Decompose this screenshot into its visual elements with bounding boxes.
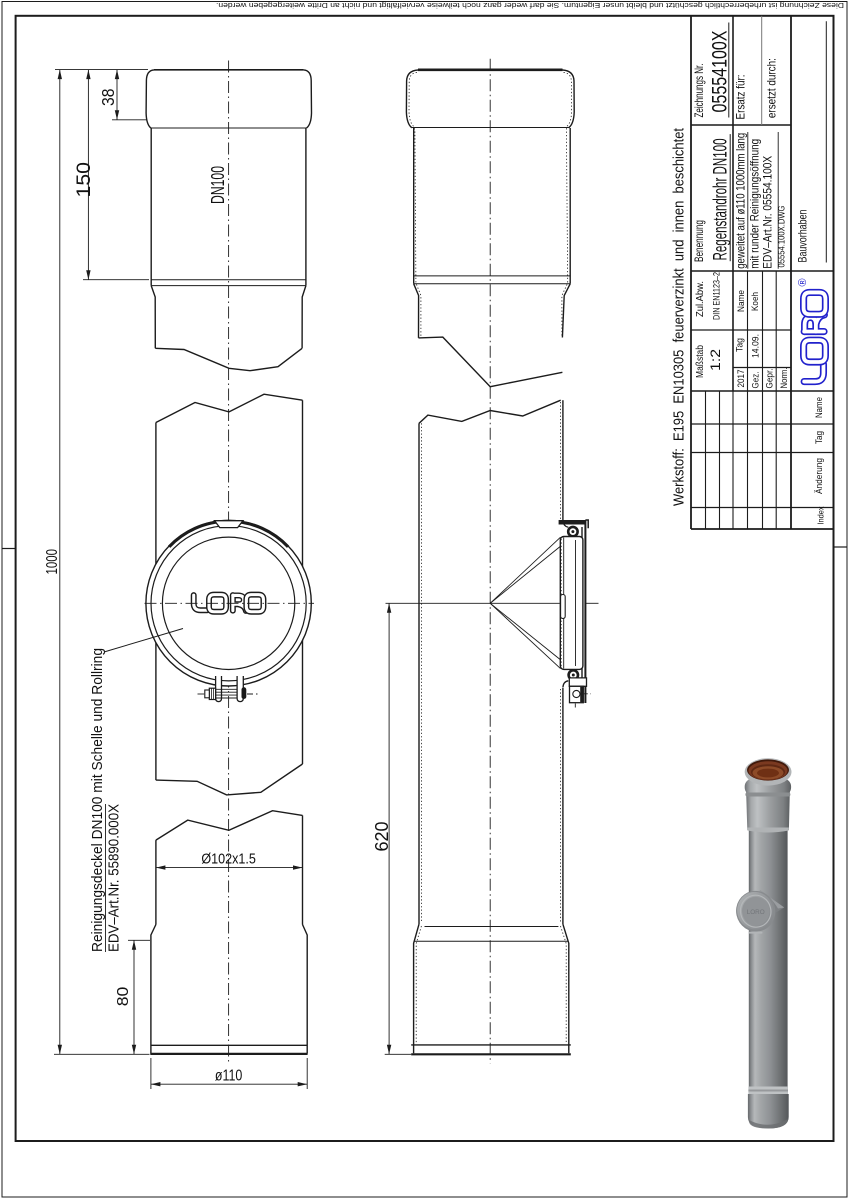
svg-text:ersetzt durch:: ersetzt durch:: [764, 58, 778, 118]
svg-text:Zeichnungs Nr.: Zeichnungs Nr.: [692, 64, 706, 118]
svg-text:Ø102x1.5: Ø102x1.5: [201, 851, 256, 868]
svg-text:38: 38: [98, 89, 118, 107]
svg-text:Benennung: Benennung: [692, 220, 706, 262]
svg-text:Reinigungsdeckel DN100 mit Sch: Reinigungsdeckel DN100 mit Schelle und R…: [90, 648, 106, 952]
svg-text:Tag: Tag: [735, 338, 745, 352]
svg-text:150: 150: [73, 162, 95, 198]
svg-text:1000: 1000: [44, 549, 61, 575]
svg-text:Koeh: Koeh: [750, 292, 760, 311]
svg-text:Diese Zeichnung ist urheberrec: Diese Zeichnung ist urheberrechtlich ges…: [216, 1, 844, 10]
svg-text:EDV–Art.Nr. 05554.100X: EDV–Art.Nr. 05554.100X: [761, 156, 775, 269]
svg-text:Zul.Abw.: Zul.Abw.: [694, 281, 706, 317]
svg-text:2017: 2017: [736, 370, 746, 388]
svg-text:EDV–Art.Nr. 55890.000X: EDV–Art.Nr. 55890.000X: [107, 804, 123, 952]
svg-text:Regenstandrohr DN100: Regenstandrohr DN100: [711, 139, 732, 261]
svg-text:DIN EN1123–2: DIN EN1123–2: [712, 272, 722, 320]
svg-text:DN100: DN100: [208, 166, 228, 204]
svg-text:14.09.: 14.09.: [751, 334, 761, 358]
svg-text:Maßstab: Maßstab: [694, 345, 706, 378]
svg-text:Werkstoff: E195 EN10305 feu: Werkstoff: E195 EN10305 feuerverzinkt un…: [672, 128, 688, 506]
svg-text:ø110: ø110: [215, 1068, 243, 1085]
svg-text:Gepr.: Gepr.: [765, 369, 775, 389]
svg-text:Bauvorhaben: Bauvorhaben: [796, 210, 810, 263]
svg-text:mit runder Reinigungsöffnung: mit runder Reinigungsöffnung: [748, 139, 762, 269]
svg-text:05554.100X.DWG: 05554.100X.DWG: [777, 206, 787, 268]
svg-text:Norm.: Norm.: [779, 368, 789, 389]
svg-text:Ersatz für:: Ersatz für:: [733, 75, 747, 120]
svg-text:Tag: Tag: [814, 431, 824, 444]
svg-text:Gez.: Gez.: [751, 372, 761, 389]
svg-text:80: 80: [115, 987, 132, 1007]
svg-text:Name: Name: [814, 397, 824, 418]
svg-text:Index: Index: [816, 506, 826, 525]
svg-text:Name: Name: [736, 290, 746, 312]
svg-text:1:2: 1:2: [707, 349, 723, 371]
svg-text:620: 620: [372, 822, 392, 852]
svg-text:®: ®: [797, 278, 809, 286]
svg-text:geweitet auf ø110 1000mm lang: geweitet auf ø110 1000mm lang: [734, 133, 748, 269]
svg-text:05554100X: 05554100X: [709, 31, 732, 113]
svg-text:LORO: LORO: [747, 909, 765, 916]
svg-text:Änderung: Änderung: [814, 458, 824, 494]
